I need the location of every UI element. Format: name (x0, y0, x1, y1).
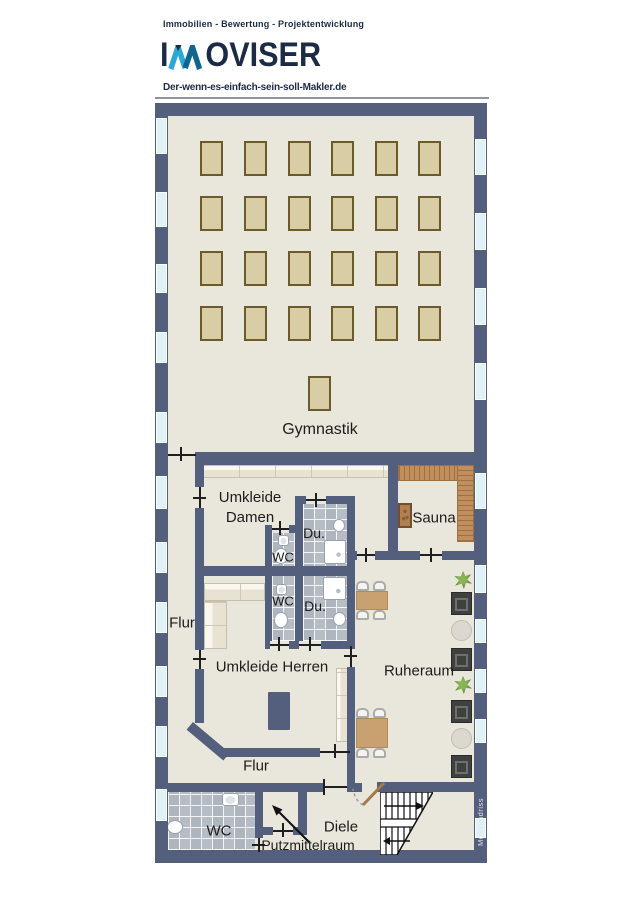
lounger-icon (451, 592, 472, 615)
window (156, 666, 167, 697)
window (156, 192, 167, 227)
wall (195, 465, 204, 487)
window (475, 619, 486, 643)
window (475, 473, 486, 509)
door-marker (325, 786, 347, 788)
floor-plan: Gymnastik Umkleide Damen Du. WC WC Du. S… (0, 0, 636, 900)
sauna-bench-right (457, 465, 474, 542)
gym-mat (331, 141, 354, 176)
wall (347, 496, 355, 551)
gym-mat (244, 196, 267, 231)
gym-mat (200, 141, 223, 176)
room-label-wc-unten: WC (207, 823, 232, 840)
chair (356, 708, 369, 718)
window (475, 363, 486, 400)
watermark-mcgrundriss: McGrundriss (476, 768, 485, 846)
lockers-herren-left (204, 601, 227, 649)
toilet-icon (274, 612, 288, 628)
door-marker (315, 493, 317, 507)
window (156, 726, 167, 757)
window (156, 118, 167, 154)
chair (356, 581, 369, 591)
room-label-umkleide-herren: Umkleide Herren (216, 659, 329, 676)
chair (373, 748, 386, 758)
window (475, 139, 486, 175)
gym-mat (200, 251, 223, 286)
gym-mat (375, 141, 398, 176)
window (475, 565, 486, 593)
wall (155, 783, 325, 792)
round-table-icon (451, 728, 472, 749)
toilet-icon (333, 612, 346, 626)
wall (377, 782, 474, 792)
wall (195, 669, 204, 723)
wall (289, 641, 299, 649)
gym-mat (244, 306, 267, 341)
room-label-gymnastik: Gymnastik (282, 421, 358, 439)
gym-mat (308, 376, 331, 411)
gym-mat (331, 251, 354, 286)
sink-icon (333, 519, 345, 532)
room-label-putzmittelraum: Putzmittelraum (261, 837, 354, 853)
ruheraum-table (356, 718, 388, 748)
room-label-du-mitte: Du. (304, 598, 326, 614)
lockers-herren-top (204, 583, 265, 601)
page: Immobilien - Bewertung - Projektentwickl… (0, 0, 636, 900)
gym-mat (418, 141, 441, 176)
toilet-icon (167, 820, 183, 834)
wall (195, 576, 204, 650)
wall (195, 452, 474, 465)
wall (442, 551, 474, 560)
door-marker (344, 655, 357, 657)
tiles-wc-bottom (168, 792, 255, 850)
door-marker (180, 447, 182, 461)
room-label-flur: Flur (169, 615, 195, 632)
window (475, 288, 486, 325)
wall (295, 496, 303, 641)
round-table-icon (451, 620, 472, 641)
door-marker (278, 637, 280, 651)
chair (356, 748, 369, 758)
gym-mat (288, 306, 311, 341)
window (156, 332, 167, 363)
window (475, 669, 486, 693)
door-marker (323, 779, 325, 795)
window (156, 264, 167, 293)
sink-icon (278, 535, 289, 546)
window (475, 213, 486, 250)
wall (155, 103, 487, 116)
gym-mat (375, 306, 398, 341)
ruheraum-table (356, 591, 388, 610)
wall (195, 566, 355, 576)
room-label-wc-oben: WC (272, 550, 294, 565)
sink-icon (222, 793, 239, 806)
gym-mat (418, 251, 441, 286)
gym-mat (288, 141, 311, 176)
window (156, 476, 167, 509)
chair (373, 581, 386, 591)
gym-mat (200, 196, 223, 231)
wall (222, 748, 320, 757)
wall (195, 508, 204, 566)
chair (373, 610, 386, 620)
lounger-icon (451, 700, 472, 723)
window (156, 789, 167, 821)
lounger-icon (451, 755, 472, 778)
gym-mat (288, 196, 311, 231)
wall (265, 525, 272, 641)
diele-door (352, 781, 388, 813)
changing-bench (268, 692, 290, 730)
gym-mat (331, 306, 354, 341)
gym-mat (375, 196, 398, 231)
shower-icon (323, 577, 346, 600)
wall (347, 560, 355, 646)
gym-mat (244, 251, 267, 286)
door-marker (282, 823, 284, 837)
gym-mat (200, 306, 223, 341)
door-marker (334, 744, 336, 758)
door-marker (193, 658, 206, 660)
gym-mat (375, 251, 398, 286)
window (156, 412, 167, 443)
gym-mat (418, 306, 441, 341)
lockers-damen (203, 465, 390, 478)
gym-mat (418, 196, 441, 231)
shower-icon (324, 540, 346, 564)
window (156, 542, 167, 573)
door-marker (430, 548, 432, 562)
lounger-icon (451, 648, 472, 671)
gym-mat (288, 251, 311, 286)
room-label-flur-unten: Flur (243, 758, 269, 775)
room-label-du-oben: Du. (303, 525, 325, 541)
wall (347, 551, 357, 560)
window (156, 602, 167, 633)
door-marker (168, 454, 196, 456)
gym-mat (244, 141, 267, 176)
door-marker (309, 637, 311, 651)
chair (356, 610, 369, 620)
wall (347, 667, 355, 792)
room-label-diele: Diele (324, 819, 358, 836)
room-label-ruheraum: Ruheraum (384, 663, 454, 680)
room-label-umkleide-damen: Umkleide Damen (204, 488, 296, 527)
door-marker (365, 548, 367, 562)
window (475, 719, 486, 743)
room-label-sauna: Sauna (412, 510, 455, 527)
sauna-heater (398, 503, 412, 528)
gym-mat (331, 196, 354, 231)
room-label-wc-mitte: WC (272, 594, 294, 609)
chair (373, 708, 386, 718)
wall (388, 452, 398, 560)
